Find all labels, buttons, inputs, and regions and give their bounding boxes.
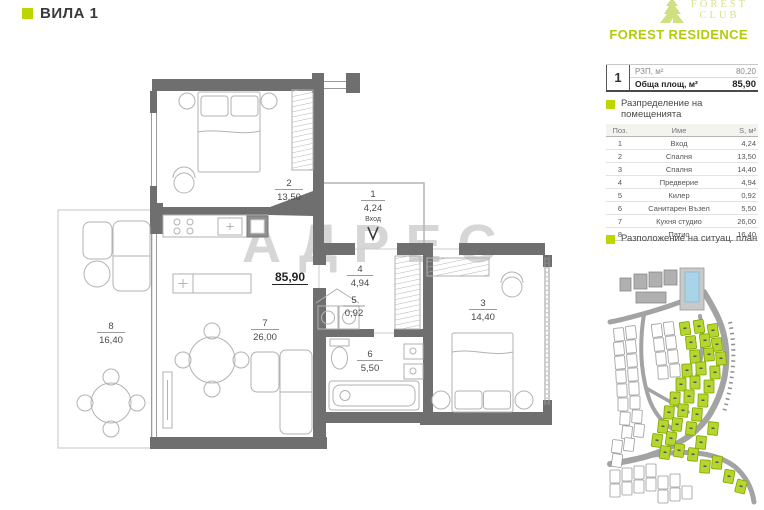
site-lot-highlighted	[704, 348, 715, 362]
table-row: 3Спалня14,40	[606, 163, 758, 176]
cell-name: Спалня	[634, 150, 724, 163]
site-lot	[628, 368, 639, 382]
room-label-6: 6 5,50	[357, 349, 383, 374]
armchair-icon	[501, 272, 523, 297]
svg-text:14,40: 14,40	[471, 312, 495, 323]
site-lot-highlighted	[678, 404, 689, 418]
nightstand-icon	[261, 93, 277, 109]
site-lot	[632, 410, 643, 424]
unit-summary: 1 РЗП, м² 80,20 Обща площ, м² 85,90	[606, 64, 758, 92]
rzp-row: РЗП, м² 80,20	[630, 65, 758, 78]
cell-name: Вход	[634, 137, 724, 150]
site-lot-highlighted	[699, 334, 710, 348]
page-title: ВИЛА 1	[22, 5, 98, 22]
site-lot	[665, 336, 676, 350]
cell-area: 26,00	[724, 215, 758, 228]
site-lot	[658, 476, 668, 489]
wardrobe-icon	[395, 256, 420, 329]
total-value: 85,90	[732, 79, 756, 90]
svg-text:7: 7	[262, 318, 267, 329]
cell-area: 13,50	[724, 150, 758, 163]
site-buildings	[620, 270, 677, 303]
site-lot-highlighted	[710, 366, 720, 379]
site-lot	[618, 398, 628, 411]
site-lot-highlighted	[735, 479, 748, 494]
site-lot	[658, 366, 669, 380]
cell-name: Килер	[634, 189, 724, 202]
siteplan-heading-text: Разположение на ситуац. план	[621, 234, 757, 245]
site-lot	[646, 478, 656, 491]
site-lot-highlighted	[692, 408, 703, 422]
cell-area: 0,92	[724, 189, 758, 202]
table-row: 4Предверие4,94	[606, 176, 758, 189]
site-lot	[623, 438, 634, 452]
site-lot	[613, 328, 624, 342]
total-area-label: 85,90	[272, 270, 308, 285]
rzp-value: 80,20	[736, 67, 756, 76]
nightstand-icon	[432, 391, 450, 409]
room-label-5: 5 0,92	[343, 295, 365, 319]
site-lot-highlighted	[707, 422, 718, 436]
cell-area: 5,50	[724, 202, 758, 215]
site-lot	[634, 466, 644, 479]
toilet-icon	[330, 339, 349, 369]
col-pos: Поз.	[606, 124, 634, 137]
sink-icon	[404, 344, 423, 379]
forest-club-wordmark: FOREST CLUB	[691, 0, 748, 21]
site-lot	[651, 324, 662, 338]
villa-title-text: ВИЛА 1	[40, 5, 98, 22]
site-lot	[682, 486, 692, 499]
svg-text:6: 6	[367, 349, 372, 360]
site-lot-highlighted	[659, 445, 671, 459]
dining-table-icon	[175, 323, 249, 397]
rooms-section-heading: Разпределение на помещенията	[606, 99, 760, 121]
site-lot-highlighted	[679, 321, 691, 335]
site-lot-highlighted	[690, 350, 701, 364]
site-lot	[620, 412, 631, 426]
cell-area: 4,24	[724, 137, 758, 150]
site-lot	[663, 322, 674, 336]
armchair-icon	[173, 167, 195, 193]
site-lot	[630, 396, 640, 409]
svg-text:3: 3	[480, 298, 485, 309]
site-lot	[625, 326, 636, 340]
table-row: 6Санитарен Възел5,50	[606, 202, 758, 215]
site-lot-highlighted	[690, 376, 700, 389]
svg-text:4,24: 4,24	[364, 203, 383, 214]
site-lot	[627, 354, 638, 368]
site-lot	[621, 426, 632, 440]
cell-pos: 1	[606, 137, 634, 150]
site-plan-map	[600, 264, 764, 508]
cell-pos: 3	[606, 163, 634, 176]
site-lot-highlighted	[673, 443, 685, 457]
cell-area: 4,94	[724, 176, 758, 189]
room-label-1: 1 4,24	[361, 189, 385, 214]
col-name: Име	[634, 124, 724, 137]
cell-name: Предверие	[634, 176, 724, 189]
site-lot-highlighted	[664, 406, 675, 420]
site-lot	[610, 470, 620, 483]
siteplan-section-heading: Разположение на ситуац. план	[606, 234, 760, 245]
outdoor-lounge-icon	[83, 221, 150, 291]
svg-text:8: 8	[108, 321, 113, 332]
site-lot	[658, 490, 668, 503]
site-lot-highlighted	[676, 378, 686, 391]
outdoor-table-icon	[77, 369, 145, 437]
room-label-3: 3 14,40	[469, 298, 497, 323]
site-lot	[670, 474, 680, 487]
svg-text:5: 5	[351, 295, 356, 306]
brand-logo: FOREST CLUB FOREST RESIDENCE	[598, 0, 748, 42]
room-label-8: 8 16,40	[97, 321, 125, 346]
bathtub-icon	[329, 381, 419, 410]
svg-text:2: 2	[286, 178, 291, 189]
cell-name: Кухня студио	[634, 215, 724, 228]
green-square-icon	[606, 235, 615, 244]
site-lot	[629, 382, 639, 395]
site-lot	[653, 338, 664, 352]
site-lot-highlighted	[696, 362, 706, 375]
site-lot	[610, 484, 620, 497]
cell-pos: 4	[606, 176, 634, 189]
site-lot-highlighted	[687, 448, 698, 462]
kitchen-counter-icon	[163, 215, 268, 237]
wardrobe-icon	[292, 90, 313, 170]
site-lot-highlighted	[685, 336, 696, 350]
site-lot	[611, 440, 622, 454]
sofa-icon	[251, 350, 312, 434]
table-row: 5Килер0,92	[606, 189, 758, 202]
total-label: Обща площ, м²	[635, 79, 698, 89]
site-lot-highlighted	[716, 352, 727, 366]
tree-icon	[658, 0, 685, 24]
svg-text:1: 1	[370, 189, 375, 200]
table-row: 7Кухня студио26,00	[606, 215, 758, 228]
site-lot	[625, 340, 636, 354]
site-lot-highlighted	[723, 469, 735, 484]
svg-text:26,00: 26,00	[253, 332, 277, 343]
site-lot-highlighted	[671, 418, 682, 432]
col-area: S, м²	[724, 124, 758, 137]
site-lot-highlighted	[684, 390, 694, 403]
cell-pos: 7	[606, 215, 634, 228]
cell-pos: 6	[606, 202, 634, 215]
table-header-row: Поз. Име S, м²	[606, 124, 758, 137]
forest-residence-wordmark: FOREST RESIDENCE	[598, 27, 748, 42]
room-label-7: 7 26,00	[251, 318, 279, 343]
rzp-label: РЗП, м²	[635, 67, 663, 76]
cell-name: Спалня	[634, 163, 724, 176]
rooms-table: Поз. Име S, м² 1Вход4,242Спалня13,503Спа…	[606, 124, 758, 241]
nightstand-icon	[179, 93, 195, 109]
svg-text:5,50: 5,50	[361, 363, 380, 374]
site-lot-highlighted	[698, 394, 708, 407]
table-row: 2Спалня13,50	[606, 150, 758, 163]
kitchen-island-icon	[173, 274, 251, 293]
site-lot	[668, 350, 679, 364]
site-lot	[613, 342, 624, 356]
wardrobe-icon	[427, 258, 489, 276]
site-lot	[634, 480, 644, 493]
site-lot-highlighted	[700, 460, 711, 474]
unit-number: 1	[606, 65, 630, 90]
site-lot	[633, 424, 644, 438]
table-row: 1Вход4,24	[606, 137, 758, 150]
entrance-label: Вход	[365, 216, 381, 223]
pool-icon	[685, 272, 699, 302]
site-lot-highlighted	[712, 456, 723, 470]
room-label-2: 2 13,50	[275, 178, 303, 203]
cell-pos: 2	[606, 150, 634, 163]
cell-area: 14,40	[724, 163, 758, 176]
nightstand-icon	[515, 391, 533, 409]
site-lot-highlighted	[682, 364, 692, 377]
site-lot	[622, 482, 632, 495]
tv-stand-icon	[163, 372, 172, 428]
site-lot-highlighted	[695, 436, 706, 450]
site-lot	[670, 488, 680, 501]
green-square-icon	[606, 100, 615, 109]
bed-icon	[198, 92, 260, 172]
site-lot-highlighted	[704, 380, 714, 393]
green-square-icon	[22, 8, 33, 19]
site-lot	[611, 453, 623, 467]
site-lot	[622, 468, 632, 481]
svg-text:13,50: 13,50	[277, 192, 301, 203]
svg-text:16,40: 16,40	[99, 335, 123, 346]
svg-text:0,92: 0,92	[345, 308, 364, 319]
site-lot	[656, 352, 667, 366]
site-lot	[646, 464, 656, 477]
svg-text:85,90: 85,90	[275, 270, 305, 284]
site-lot	[616, 370, 627, 384]
site-lot-highlighted	[670, 392, 680, 405]
site-lot	[670, 364, 681, 378]
site-lot-highlighted	[693, 319, 705, 333]
svg-text:4: 4	[357, 264, 362, 275]
rooms-heading-text: Разпределение на помещенията	[621, 99, 760, 121]
svg-text:4,94: 4,94	[351, 278, 370, 289]
cell-pos: 5	[606, 189, 634, 202]
bed-icon	[452, 333, 513, 412]
site-lot	[617, 384, 627, 397]
cell-name: Санитарен Възел	[634, 202, 724, 215]
site-lot-highlighted	[685, 422, 696, 436]
total-area-row: Обща площ, м² 85,90	[630, 78, 758, 90]
site-lot	[615, 356, 626, 370]
